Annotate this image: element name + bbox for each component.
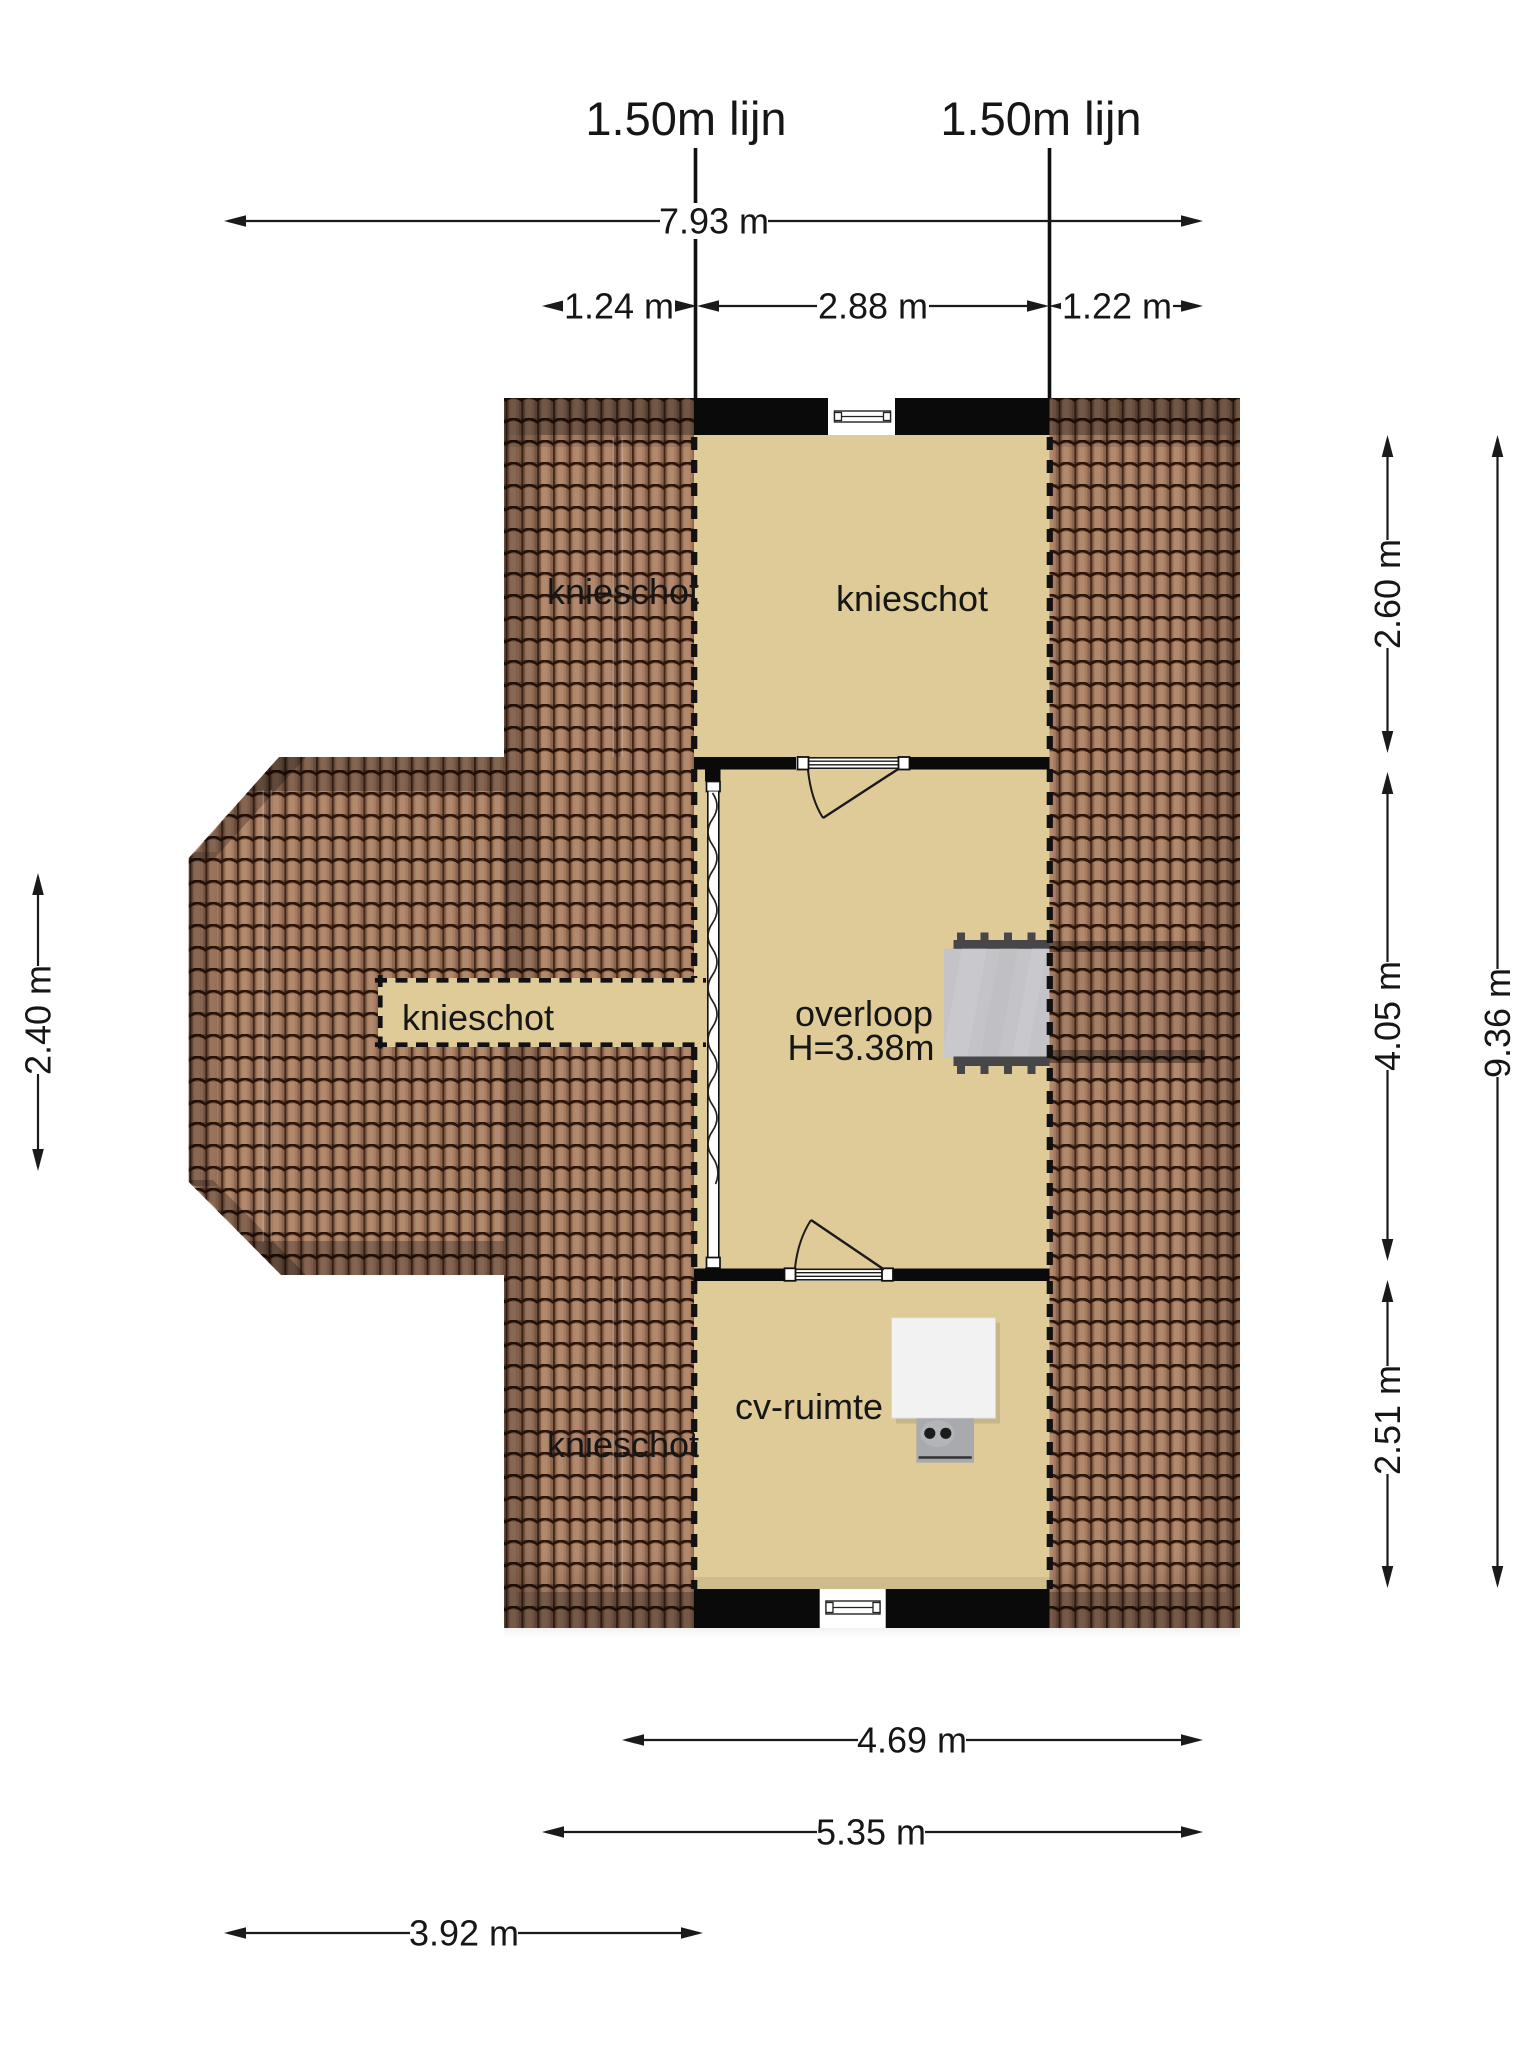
svg-text:knieschot: knieschot — [547, 1424, 699, 1465]
svg-text:7.93 m: 7.93 m — [659, 201, 769, 242]
svg-text:2.51 m: 2.51 m — [1367, 1365, 1408, 1475]
svg-text:1.22 m: 1.22 m — [1062, 286, 1172, 327]
svg-text:3.92 m: 3.92 m — [409, 1913, 519, 1954]
svg-text:4.69 m: 4.69 m — [857, 1720, 967, 1761]
svg-text:knieschot: knieschot — [402, 997, 554, 1038]
svg-text:2.88 m: 2.88 m — [818, 286, 928, 327]
svg-text:2.60 m: 2.60 m — [1367, 539, 1408, 649]
svg-text:cv-ruimte: cv-ruimte — [735, 1386, 883, 1427]
svg-text:5.35 m: 5.35 m — [816, 1812, 926, 1853]
svg-text:knieschot: knieschot — [547, 571, 699, 612]
svg-text:4.05 m: 4.05 m — [1367, 961, 1408, 1071]
svg-text:9.36 m: 9.36 m — [1477, 968, 1518, 1078]
svg-text:2.40 m: 2.40 m — [18, 965, 59, 1075]
svg-text:1.24 m: 1.24 m — [564, 286, 674, 327]
svg-text:H=3.38m: H=3.38m — [787, 1027, 934, 1068]
svg-text:1.50m lijn: 1.50m lijn — [585, 92, 786, 145]
svg-text:knieschot: knieschot — [836, 578, 988, 619]
svg-text:1.50m lijn: 1.50m lijn — [940, 92, 1141, 145]
